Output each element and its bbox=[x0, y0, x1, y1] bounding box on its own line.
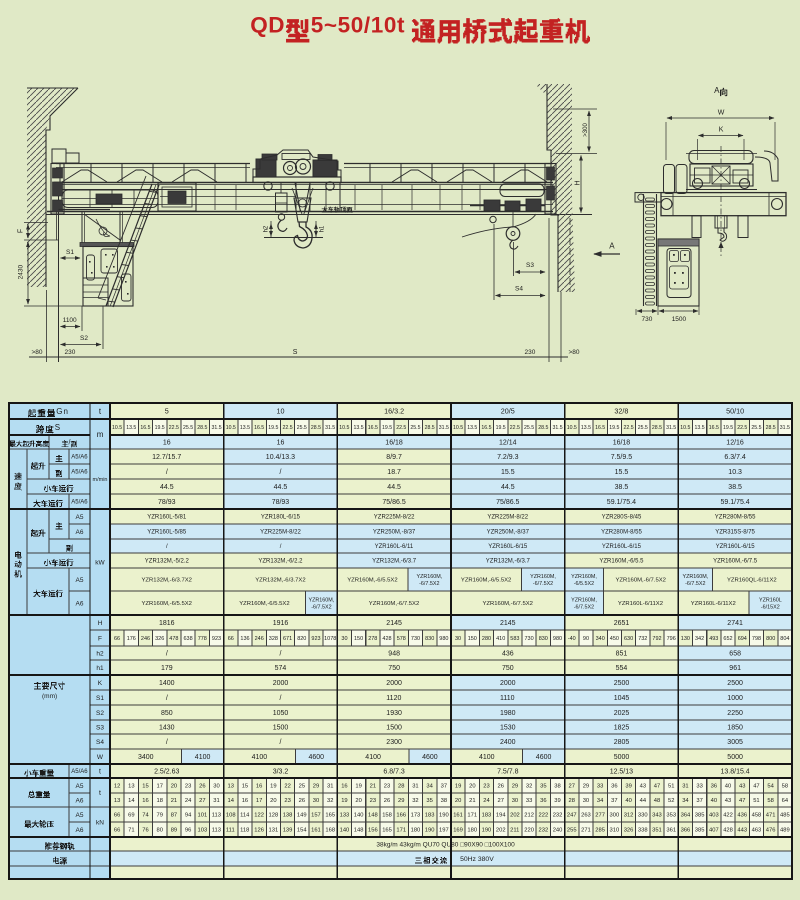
svg-text:23: 23 bbox=[384, 784, 390, 790]
svg-text:16.5: 16.5 bbox=[254, 425, 264, 431]
svg-text:7.5/9.5: 7.5/9.5 bbox=[611, 454, 633, 461]
svg-text:13.5: 13.5 bbox=[581, 425, 591, 431]
svg-text:247: 247 bbox=[567, 813, 577, 819]
svg-text:13.5: 13.5 bbox=[240, 425, 250, 431]
svg-text:157: 157 bbox=[311, 813, 321, 819]
svg-text:/: / bbox=[280, 695, 282, 702]
svg-text:m/min: m/min bbox=[93, 477, 108, 483]
svg-text:158: 158 bbox=[382, 813, 392, 819]
svg-text:32: 32 bbox=[412, 798, 418, 804]
svg-text:>80: >80 bbox=[569, 349, 580, 356]
svg-text:50/10: 50/10 bbox=[726, 407, 744, 416]
svg-text:179: 179 bbox=[161, 665, 173, 672]
svg-text:2500: 2500 bbox=[614, 680, 630, 687]
svg-text:64: 64 bbox=[782, 798, 789, 804]
svg-text:78/93: 78/93 bbox=[158, 499, 176, 506]
svg-text:21: 21 bbox=[171, 798, 177, 804]
svg-text:YZR132M,-6/3.7: YZR132M,-6/3.7 bbox=[486, 559, 531, 565]
svg-text:351: 351 bbox=[652, 828, 662, 834]
svg-text:71: 71 bbox=[128, 828, 134, 834]
svg-text:34: 34 bbox=[426, 784, 433, 790]
svg-text:59.1/75.4: 59.1/75.4 bbox=[721, 499, 750, 506]
svg-text:h2: h2 bbox=[96, 650, 104, 657]
svg-text:25.5: 25.5 bbox=[410, 425, 420, 431]
svg-text:149: 149 bbox=[297, 813, 307, 819]
svg-text:923: 923 bbox=[311, 636, 320, 642]
svg-text:171: 171 bbox=[467, 813, 477, 819]
svg-text:16.5: 16.5 bbox=[595, 425, 605, 431]
svg-text:48: 48 bbox=[654, 798, 660, 804]
svg-text:410: 410 bbox=[496, 636, 505, 642]
svg-text:31.5: 31.5 bbox=[780, 425, 790, 431]
svg-text:YZR132M,-5/2.2: YZR132M,-5/2.2 bbox=[145, 559, 190, 565]
svg-text:165: 165 bbox=[382, 828, 392, 834]
svg-text:23: 23 bbox=[370, 798, 376, 804]
svg-text:47: 47 bbox=[753, 784, 759, 790]
svg-text:28: 28 bbox=[569, 798, 575, 804]
svg-text:300: 300 bbox=[610, 813, 620, 819]
svg-text:H: H bbox=[98, 620, 103, 627]
svg-text:230: 230 bbox=[65, 349, 76, 356]
svg-text:-6/7.5X2: -6/7.5X2 bbox=[311, 604, 331, 610]
svg-text:366: 366 bbox=[681, 828, 691, 834]
svg-text:190: 190 bbox=[425, 828, 435, 834]
svg-text:F: F bbox=[18, 229, 25, 233]
svg-text:30: 30 bbox=[512, 798, 518, 804]
svg-text:19.5: 19.5 bbox=[382, 425, 392, 431]
svg-text:75/86.5: 75/86.5 bbox=[496, 499, 519, 506]
svg-text:38: 38 bbox=[441, 798, 447, 804]
svg-text:35: 35 bbox=[426, 798, 432, 804]
svg-text:428: 428 bbox=[382, 636, 391, 642]
svg-text:190: 190 bbox=[439, 813, 449, 819]
svg-text:31.5: 31.5 bbox=[212, 425, 222, 431]
svg-text:YZR315S-8/75: YZR315S-8/75 bbox=[715, 530, 755, 536]
svg-text:YZR180L-6/15: YZR180L-6/15 bbox=[261, 515, 301, 521]
svg-text:166: 166 bbox=[396, 813, 406, 819]
svg-text:165: 165 bbox=[325, 813, 335, 819]
svg-text:25: 25 bbox=[299, 784, 305, 790]
svg-text:YZR280S-8/45: YZR280S-8/45 bbox=[602, 515, 642, 521]
svg-text:89: 89 bbox=[171, 828, 177, 834]
svg-text:YZR225M-8/22: YZR225M-8/22 bbox=[374, 515, 415, 521]
svg-text:638: 638 bbox=[184, 636, 193, 642]
svg-text:428: 428 bbox=[723, 828, 733, 834]
svg-text:22.5: 22.5 bbox=[283, 425, 293, 431]
svg-text:183: 183 bbox=[482, 813, 492, 819]
svg-text:343: 343 bbox=[652, 813, 662, 819]
svg-text:S: S bbox=[55, 423, 61, 432]
svg-text:1850: 1850 bbox=[727, 725, 743, 732]
svg-text:90: 90 bbox=[583, 636, 589, 642]
svg-text:S4: S4 bbox=[515, 285, 523, 292]
svg-text:15.5: 15.5 bbox=[615, 469, 629, 476]
svg-text:232: 232 bbox=[553, 813, 563, 819]
svg-text:20/5: 20/5 bbox=[501, 407, 515, 416]
svg-text:150: 150 bbox=[354, 636, 363, 642]
svg-text:730: 730 bbox=[525, 636, 534, 642]
svg-text:554: 554 bbox=[616, 665, 628, 672]
svg-text:27: 27 bbox=[199, 798, 205, 804]
svg-text:A6: A6 bbox=[76, 827, 84, 834]
svg-text:23: 23 bbox=[185, 784, 191, 790]
svg-text:31.5: 31.5 bbox=[439, 425, 449, 431]
svg-text:S1: S1 bbox=[96, 695, 104, 702]
svg-text:1078: 1078 bbox=[324, 636, 336, 642]
svg-text:2651: 2651 bbox=[614, 620, 630, 627]
svg-text:W: W bbox=[718, 110, 725, 117]
svg-text:1500: 1500 bbox=[273, 725, 289, 732]
svg-text:4600: 4600 bbox=[309, 754, 325, 761]
svg-text:436: 436 bbox=[737, 813, 747, 819]
svg-text:YZR160L-6/11X2: YZR160L-6/11X2 bbox=[691, 601, 736, 607]
svg-text:YZR160M,-6/7.5X2: YZR160M,-6/7.5X2 bbox=[369, 601, 419, 607]
svg-text:13.5: 13.5 bbox=[467, 425, 477, 431]
svg-text:330: 330 bbox=[638, 813, 648, 819]
svg-text:278: 278 bbox=[368, 636, 377, 642]
svg-text:18.7: 18.7 bbox=[387, 469, 401, 476]
svg-text:10.5: 10.5 bbox=[453, 425, 463, 431]
svg-text:13.5: 13.5 bbox=[354, 425, 364, 431]
svg-text:20: 20 bbox=[171, 784, 177, 790]
svg-text:694: 694 bbox=[738, 636, 747, 642]
svg-text:66: 66 bbox=[114, 828, 120, 834]
svg-text:12.5/13: 12.5/13 bbox=[610, 769, 633, 776]
svg-text:15: 15 bbox=[242, 784, 248, 790]
svg-text:YZR160QL-6/11X2: YZR160QL-6/11X2 bbox=[727, 578, 777, 584]
svg-text:K: K bbox=[719, 127, 724, 134]
svg-text:2145: 2145 bbox=[386, 620, 402, 627]
svg-text:25.5: 25.5 bbox=[183, 425, 193, 431]
svg-text:4600: 4600 bbox=[422, 754, 438, 761]
svg-text:16: 16 bbox=[277, 440, 285, 447]
svg-text:31.5: 31.5 bbox=[553, 425, 563, 431]
svg-text:5~50/10t: 5~50/10t bbox=[311, 13, 405, 38]
svg-text:980: 980 bbox=[553, 636, 562, 642]
svg-text:778: 778 bbox=[198, 636, 207, 642]
svg-text:S3: S3 bbox=[526, 262, 534, 269]
svg-text:31: 31 bbox=[213, 798, 219, 804]
svg-text:/: / bbox=[69, 440, 71, 447]
svg-text:16.5: 16.5 bbox=[368, 425, 378, 431]
svg-text:YZR160M,: YZR160M, bbox=[530, 574, 556, 580]
svg-text:161: 161 bbox=[311, 828, 321, 834]
svg-text:436: 436 bbox=[502, 651, 514, 658]
svg-text:47: 47 bbox=[654, 784, 660, 790]
svg-text:14: 14 bbox=[228, 798, 235, 804]
svg-text:A5: A5 bbox=[76, 577, 84, 584]
svg-text:35: 35 bbox=[540, 784, 546, 790]
svg-text:31: 31 bbox=[412, 784, 418, 790]
svg-text:YZR132M,-6/3.7X2: YZR132M,-6/3.7X2 bbox=[142, 578, 192, 584]
svg-text:h1: h1 bbox=[320, 225, 326, 232]
svg-text:161: 161 bbox=[453, 813, 463, 819]
svg-text:820: 820 bbox=[297, 636, 306, 642]
svg-text:197: 197 bbox=[439, 828, 449, 834]
svg-text:338: 338 bbox=[638, 828, 648, 834]
svg-text:40: 40 bbox=[711, 798, 717, 804]
svg-text:4600: 4600 bbox=[536, 754, 552, 761]
svg-text:43: 43 bbox=[725, 798, 731, 804]
svg-text:/: / bbox=[280, 739, 282, 746]
svg-text:850: 850 bbox=[161, 710, 173, 717]
svg-text:13: 13 bbox=[114, 798, 120, 804]
svg-text:44.5: 44.5 bbox=[160, 484, 174, 491]
svg-text:66: 66 bbox=[114, 636, 120, 642]
svg-text:1110: 1110 bbox=[500, 695, 515, 702]
svg-text:25.5: 25.5 bbox=[751, 425, 761, 431]
svg-text:20: 20 bbox=[469, 784, 475, 790]
svg-text:3005: 3005 bbox=[727, 739, 743, 746]
svg-text:1530: 1530 bbox=[500, 725, 516, 732]
svg-text:156: 156 bbox=[368, 828, 378, 834]
svg-text:798: 798 bbox=[752, 636, 761, 642]
svg-text:148: 148 bbox=[354, 828, 364, 834]
svg-text:A5: A5 bbox=[76, 514, 84, 521]
svg-text:YZR225M-8/22: YZR225M-8/22 bbox=[487, 515, 528, 521]
svg-text:18: 18 bbox=[157, 798, 163, 804]
svg-text:28.5: 28.5 bbox=[197, 425, 207, 431]
svg-text:16.5: 16.5 bbox=[709, 425, 719, 431]
svg-text:220: 220 bbox=[524, 828, 534, 834]
svg-text:1430: 1430 bbox=[159, 725, 175, 732]
svg-text:YZR160L-5/81: YZR160L-5/81 bbox=[147, 515, 187, 521]
svg-text:16: 16 bbox=[163, 440, 171, 447]
svg-text:>80: >80 bbox=[32, 349, 43, 356]
svg-text:S1: S1 bbox=[66, 249, 74, 256]
svg-text:31: 31 bbox=[327, 784, 333, 790]
svg-text:463: 463 bbox=[752, 828, 762, 834]
svg-text:58: 58 bbox=[782, 784, 788, 790]
svg-text:YZR160M,-6/5.5X2: YZR160M,-6/5.5X2 bbox=[461, 578, 511, 584]
svg-text:80: 80 bbox=[157, 828, 163, 834]
svg-text:19: 19 bbox=[355, 784, 361, 790]
svg-text:139: 139 bbox=[283, 828, 293, 834]
svg-text:A6: A6 bbox=[76, 529, 84, 536]
svg-text:342: 342 bbox=[695, 636, 704, 642]
svg-text:40: 40 bbox=[725, 784, 731, 790]
svg-text:15.5: 15.5 bbox=[501, 469, 515, 476]
svg-text:183: 183 bbox=[425, 813, 435, 819]
svg-text:796: 796 bbox=[667, 636, 676, 642]
svg-text:1500: 1500 bbox=[386, 725, 402, 732]
svg-text:168: 168 bbox=[325, 828, 335, 834]
svg-text:YZR160L-6/15: YZR160L-6/15 bbox=[488, 544, 528, 550]
svg-text:489: 489 bbox=[780, 828, 790, 834]
svg-text:A6: A6 bbox=[76, 600, 84, 607]
svg-text:20: 20 bbox=[270, 798, 276, 804]
svg-text:2250: 2250 bbox=[727, 710, 743, 717]
svg-text:-6/7.5X2: -6/7.5X2 bbox=[419, 581, 439, 587]
svg-text:130: 130 bbox=[681, 636, 690, 642]
svg-text:792: 792 bbox=[652, 636, 661, 642]
svg-text:30: 30 bbox=[341, 636, 347, 642]
svg-text:180: 180 bbox=[411, 828, 421, 834]
svg-text:28.5: 28.5 bbox=[311, 425, 321, 431]
svg-text:133: 133 bbox=[340, 813, 350, 819]
svg-text:/: / bbox=[280, 651, 282, 658]
svg-text:202: 202 bbox=[510, 813, 520, 819]
svg-text:(mm): (mm) bbox=[42, 693, 57, 700]
svg-text:30: 30 bbox=[313, 798, 319, 804]
svg-text:1045: 1045 bbox=[614, 695, 630, 702]
svg-text:F: F bbox=[98, 635, 102, 642]
svg-text:750: 750 bbox=[388, 665, 400, 672]
svg-text:328: 328 bbox=[269, 636, 278, 642]
svg-text:H: H bbox=[575, 180, 582, 185]
svg-text:17: 17 bbox=[256, 798, 262, 804]
svg-text:34: 34 bbox=[597, 798, 604, 804]
svg-text:3/3.2: 3/3.2 bbox=[273, 769, 289, 776]
svg-text:10: 10 bbox=[277, 407, 285, 416]
svg-text:211: 211 bbox=[510, 828, 519, 834]
svg-text:29: 29 bbox=[398, 798, 404, 804]
svg-text:10.5: 10.5 bbox=[680, 425, 690, 431]
svg-text:340: 340 bbox=[596, 636, 605, 642]
svg-text:A5: A5 bbox=[76, 812, 84, 819]
svg-text:212: 212 bbox=[524, 813, 534, 819]
svg-text:30: 30 bbox=[455, 636, 461, 642]
svg-text:194: 194 bbox=[496, 813, 506, 819]
svg-text:114: 114 bbox=[240, 813, 250, 819]
svg-text:1916: 1916 bbox=[273, 620, 289, 627]
svg-text:21: 21 bbox=[469, 798, 475, 804]
svg-text:39: 39 bbox=[625, 784, 631, 790]
svg-text:28.5: 28.5 bbox=[425, 425, 435, 431]
svg-text:A: A bbox=[714, 86, 720, 95]
svg-text:19.5: 19.5 bbox=[268, 425, 278, 431]
svg-text:-6/7.5X2: -6/7.5X2 bbox=[533, 581, 553, 587]
svg-text:28.5: 28.5 bbox=[766, 425, 776, 431]
svg-text:36: 36 bbox=[540, 798, 546, 804]
svg-text:1400: 1400 bbox=[159, 680, 175, 687]
svg-text:59.1/75.4: 59.1/75.4 bbox=[607, 499, 636, 506]
svg-text:38.5: 38.5 bbox=[615, 484, 629, 491]
svg-text:1930: 1930 bbox=[386, 710, 402, 717]
svg-text:240: 240 bbox=[553, 828, 563, 834]
svg-text:/: / bbox=[166, 739, 168, 746]
svg-text:280: 280 bbox=[482, 636, 491, 642]
svg-text:YZR250M,-8/37: YZR250M,-8/37 bbox=[487, 530, 530, 536]
svg-text:19.5: 19.5 bbox=[609, 425, 619, 431]
svg-text:19: 19 bbox=[341, 798, 347, 804]
svg-text:148: 148 bbox=[368, 813, 378, 819]
svg-text:2430: 2430 bbox=[17, 264, 24, 279]
svg-text:YZR160M,-6/5.5X2: YZR160M,-6/5.5X2 bbox=[239, 601, 289, 607]
svg-text:YZR160M,: YZR160M, bbox=[683, 574, 709, 580]
svg-text:13.5: 13.5 bbox=[695, 425, 705, 431]
svg-text:t: t bbox=[99, 769, 101, 776]
svg-text:750: 750 bbox=[502, 665, 514, 672]
svg-text:658: 658 bbox=[729, 651, 741, 658]
svg-text:69: 69 bbox=[128, 813, 134, 819]
svg-text:12.7/15.7: 12.7/15.7 bbox=[152, 454, 181, 461]
svg-text:54: 54 bbox=[767, 784, 774, 790]
svg-text:23: 23 bbox=[483, 784, 489, 790]
svg-text:2.5/2.63: 2.5/2.63 bbox=[154, 769, 179, 776]
svg-text:113: 113 bbox=[212, 813, 221, 819]
svg-text:38.5: 38.5 bbox=[728, 484, 742, 491]
svg-text:50Hz 380V: 50Hz 380V bbox=[460, 856, 494, 863]
svg-text:443: 443 bbox=[737, 828, 747, 834]
svg-text:YZR160M,-6/5.5X2: YZR160M,-6/5.5X2 bbox=[142, 601, 192, 607]
svg-text:-6/7.5X2: -6/7.5X2 bbox=[685, 581, 705, 587]
svg-text:27: 27 bbox=[498, 798, 504, 804]
svg-text:-6/15X2: -6/15X2 bbox=[761, 604, 780, 610]
svg-text:29: 29 bbox=[313, 784, 319, 790]
svg-text:A5: A5 bbox=[76, 783, 84, 790]
svg-text:22.5: 22.5 bbox=[169, 425, 179, 431]
svg-text:458: 458 bbox=[752, 813, 762, 819]
svg-text:YZR160M,-6/7.5X2: YZR160M,-6/7.5X2 bbox=[483, 601, 533, 607]
svg-text:485: 485 bbox=[780, 813, 790, 819]
svg-text:21: 21 bbox=[370, 784, 376, 790]
svg-text:W: W bbox=[97, 754, 104, 761]
svg-text:8/9.7: 8/9.7 bbox=[386, 454, 402, 461]
svg-text:37: 37 bbox=[441, 784, 447, 790]
svg-text:33: 33 bbox=[597, 784, 603, 790]
svg-text:/: / bbox=[280, 469, 282, 476]
svg-text:263: 263 bbox=[581, 813, 591, 819]
svg-text:4100: 4100 bbox=[479, 754, 495, 761]
svg-text:361: 361 bbox=[666, 828, 676, 834]
svg-text:630: 630 bbox=[624, 636, 633, 642]
svg-text:39: 39 bbox=[554, 798, 560, 804]
svg-text:222: 222 bbox=[539, 813, 549, 819]
svg-text:385: 385 bbox=[695, 828, 705, 834]
svg-text:407: 407 bbox=[709, 828, 719, 834]
svg-text:YZR160L-6/15: YZR160L-6/15 bbox=[716, 544, 756, 550]
svg-text:326: 326 bbox=[155, 636, 164, 642]
svg-text:-6/5.5X2: -6/5.5X2 bbox=[574, 581, 594, 587]
svg-text:1500: 1500 bbox=[672, 316, 687, 323]
svg-text:16/3.2: 16/3.2 bbox=[384, 407, 404, 416]
svg-text:3400: 3400 bbox=[138, 754, 154, 761]
svg-text:29: 29 bbox=[583, 784, 589, 790]
svg-text:1816: 1816 bbox=[159, 620, 175, 627]
svg-text:108: 108 bbox=[226, 813, 236, 819]
svg-text:66: 66 bbox=[114, 813, 120, 819]
svg-text:40: 40 bbox=[625, 798, 631, 804]
svg-text:12/16: 12/16 bbox=[726, 440, 744, 447]
svg-text:730: 730 bbox=[642, 316, 653, 323]
svg-text:652: 652 bbox=[723, 636, 732, 642]
svg-text:YZR160M,-6/5.5: YZR160M,-6/5.5 bbox=[599, 559, 644, 565]
svg-text:kN: kN bbox=[96, 819, 104, 826]
svg-text:87: 87 bbox=[171, 813, 177, 819]
svg-text:YZR160M,: YZR160M, bbox=[309, 598, 335, 604]
svg-text:YZR132M,-6/3.7: YZR132M,-6/3.7 bbox=[372, 559, 417, 565]
svg-text:S3: S3 bbox=[96, 724, 104, 731]
svg-text:22: 22 bbox=[284, 784, 290, 790]
svg-text:385: 385 bbox=[695, 813, 705, 819]
svg-text:30: 30 bbox=[583, 798, 589, 804]
svg-text:4100: 4100 bbox=[252, 754, 268, 761]
svg-text:74: 74 bbox=[142, 813, 149, 819]
svg-text:YZR160M,: YZR160M, bbox=[571, 574, 597, 580]
svg-text:140: 140 bbox=[340, 828, 350, 834]
svg-text:2805: 2805 bbox=[614, 739, 630, 746]
svg-text:246: 246 bbox=[141, 636, 150, 642]
svg-text:19.5: 19.5 bbox=[155, 425, 165, 431]
svg-text:122: 122 bbox=[254, 813, 264, 819]
svg-text:312: 312 bbox=[624, 813, 634, 819]
svg-text:851: 851 bbox=[616, 651, 628, 658]
svg-text:202: 202 bbox=[496, 828, 506, 834]
svg-text:1980: 1980 bbox=[500, 710, 516, 717]
svg-text:K: K bbox=[98, 680, 103, 687]
svg-text:1000: 1000 bbox=[727, 695, 743, 702]
